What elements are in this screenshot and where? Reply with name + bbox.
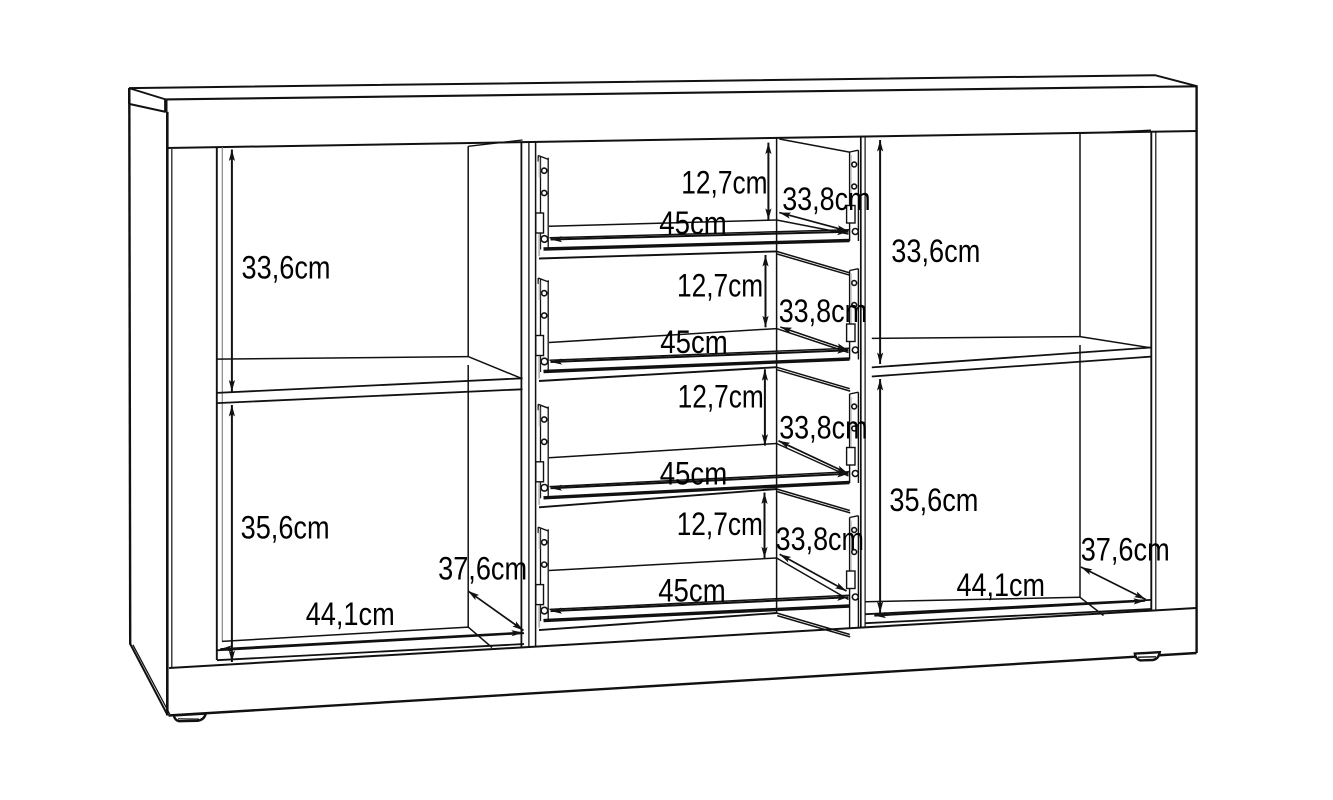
- svg-text:44,1cm: 44,1cm: [957, 567, 1046, 603]
- svg-text:45cm: 45cm: [658, 572, 726, 608]
- svg-text:33,8cm: 33,8cm: [782, 181, 870, 217]
- svg-text:12,7cm: 12,7cm: [681, 164, 767, 200]
- svg-text:35,6cm: 35,6cm: [241, 510, 330, 546]
- svg-text:12,7cm: 12,7cm: [677, 268, 763, 304]
- svg-text:12,7cm: 12,7cm: [678, 379, 764, 415]
- svg-text:12,7cm: 12,7cm: [677, 506, 763, 542]
- svg-text:33,8cm: 33,8cm: [779, 293, 867, 329]
- svg-text:45cm: 45cm: [660, 455, 728, 491]
- svg-text:45cm: 45cm: [660, 324, 728, 360]
- svg-text:33,8cm: 33,8cm: [779, 409, 867, 445]
- svg-text:33,6cm: 33,6cm: [891, 233, 980, 269]
- svg-text:45cm: 45cm: [659, 205, 727, 241]
- svg-text:33,8cm: 33,8cm: [776, 521, 864, 557]
- svg-text:35,6cm: 35,6cm: [889, 482, 978, 518]
- svg-text:33,6cm: 33,6cm: [242, 250, 331, 286]
- svg-text:37,6cm: 37,6cm: [438, 550, 527, 586]
- svg-text:37,6cm: 37,6cm: [1081, 531, 1170, 567]
- svg-text:44,1cm: 44,1cm: [306, 596, 395, 632]
